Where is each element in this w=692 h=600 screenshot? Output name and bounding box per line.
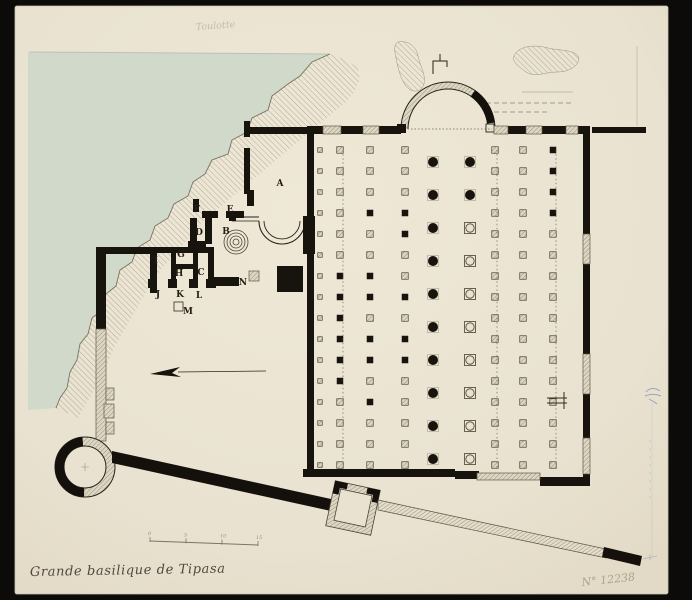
room-wall-black xyxy=(229,214,236,221)
pier-hatched xyxy=(520,357,527,364)
pier-solid xyxy=(337,336,344,343)
pier-hatched xyxy=(402,441,409,448)
pier-hatched xyxy=(402,273,409,280)
column-filled-circle xyxy=(465,157,475,167)
basilica-wall-black xyxy=(303,469,455,477)
column-filled-circle xyxy=(428,322,438,332)
pier-hatched xyxy=(520,420,527,427)
room-wall-black xyxy=(96,247,106,329)
basilica-wall-black xyxy=(583,264,590,354)
column-filled-circle xyxy=(428,388,438,398)
pier-solid xyxy=(337,315,344,322)
pier-solid xyxy=(402,336,409,343)
basilica-wall-hatched xyxy=(566,126,578,134)
room-label-H: H xyxy=(175,269,184,279)
column-open-circle xyxy=(466,422,474,430)
column-open-circle xyxy=(466,224,474,232)
column-filled-circle xyxy=(428,256,438,266)
room-label-K: K xyxy=(176,290,185,300)
pier-hatched xyxy=(520,294,527,301)
pier-hatched xyxy=(337,441,344,448)
column-open-circle xyxy=(466,323,474,331)
pier-hatched xyxy=(318,442,323,447)
pier-hatched xyxy=(402,399,409,406)
column-filled-circle xyxy=(428,190,438,200)
pier-hatched xyxy=(550,294,557,301)
room-wall-black xyxy=(277,266,303,292)
pier-hatched xyxy=(367,462,374,469)
pier-hatched xyxy=(367,315,374,322)
pier-hatched xyxy=(367,168,374,175)
pier-solid xyxy=(550,147,557,154)
basilica-wall-black xyxy=(307,134,314,470)
pier-solid xyxy=(550,168,557,175)
pier-hatched xyxy=(337,252,344,259)
apse-springer-square xyxy=(486,124,494,132)
room-wall-hatched xyxy=(249,271,259,281)
pier-hatched xyxy=(402,252,409,259)
basilica-wall-hatched xyxy=(583,234,590,264)
column-open-circle xyxy=(466,257,474,265)
room-label-D: D xyxy=(195,228,203,238)
basilica-wall-black xyxy=(397,124,406,133)
pier-hatched xyxy=(318,295,323,300)
basilica-wall-hatched xyxy=(583,438,590,474)
pier-hatched xyxy=(337,420,344,427)
room-label-C: C xyxy=(197,268,204,278)
basilica-wall-black xyxy=(341,126,363,134)
pier-hatched xyxy=(318,337,323,342)
basilica-wall-black xyxy=(583,134,590,234)
pier-hatched xyxy=(520,273,527,280)
pier-solid xyxy=(550,210,557,217)
room-label-E: E xyxy=(227,205,234,215)
room-wall-black xyxy=(205,218,212,244)
pier-hatched xyxy=(367,441,374,448)
pier-hatched xyxy=(402,189,409,196)
room-wall-hatched xyxy=(106,422,114,434)
pier-hatched xyxy=(550,462,557,469)
basilica-wall-hatched xyxy=(583,354,590,394)
pier-hatched xyxy=(550,336,557,343)
gate-structure xyxy=(326,481,381,536)
plan-drawing: ABCDEFGHIJKLMN051015 Grande basilique de… xyxy=(0,0,692,600)
pier-hatched xyxy=(550,441,557,448)
pier-solid xyxy=(367,210,374,217)
pier-hatched xyxy=(367,147,374,154)
column-filled-circle xyxy=(428,289,438,299)
pier-hatched xyxy=(402,378,409,385)
pier-hatched xyxy=(318,169,323,174)
pier-hatched xyxy=(550,357,557,364)
column-filled-circle xyxy=(428,454,438,464)
pier-hatched xyxy=(318,358,323,363)
pier-hatched xyxy=(318,400,323,405)
basilica-wall-hatched xyxy=(323,126,341,134)
pier-solid xyxy=(337,273,344,280)
basilica-wall-black xyxy=(583,394,590,438)
pier-solid xyxy=(367,273,374,280)
pier-hatched xyxy=(318,274,323,279)
pier-hatched xyxy=(318,190,323,195)
pier-hatched xyxy=(318,316,323,321)
column-filled-circle xyxy=(465,190,475,200)
pier-solid xyxy=(367,357,374,364)
room-wall-hatched xyxy=(96,329,106,441)
pier-hatched xyxy=(402,315,409,322)
column-open-circle xyxy=(466,356,474,364)
room-label-I: I xyxy=(154,256,158,266)
pier-hatched xyxy=(402,147,409,154)
pier-solid xyxy=(367,399,374,406)
pier-hatched xyxy=(550,273,557,280)
pier-hatched xyxy=(550,399,557,406)
room-wall-black xyxy=(168,279,177,288)
pier-solid xyxy=(550,189,557,196)
pier-hatched xyxy=(337,147,344,154)
room-wall-black xyxy=(303,216,315,254)
pier-solid xyxy=(337,294,344,301)
room-wall-black xyxy=(103,247,152,254)
pier-solid xyxy=(402,294,409,301)
pier-hatched xyxy=(520,252,527,259)
pier-hatched xyxy=(520,168,527,175)
pier-hatched xyxy=(318,232,323,237)
room-label-N: N xyxy=(239,278,247,288)
archival-photograph: ABCDEFGHIJKLMN051015 Grande basilique de… xyxy=(0,0,692,600)
column-open-circle xyxy=(466,455,474,463)
pier-hatched xyxy=(318,463,323,468)
pier-hatched xyxy=(318,379,323,384)
pier-hatched xyxy=(520,147,527,154)
room-wall-hatched xyxy=(106,388,114,400)
pier-hatched xyxy=(337,189,344,196)
column-filled-circle xyxy=(428,355,438,365)
pier-solid xyxy=(402,210,409,217)
pier-hatched xyxy=(318,421,323,426)
pier-hatched xyxy=(520,399,527,406)
basilica-wall-black xyxy=(455,471,479,479)
tower-ring xyxy=(55,437,115,497)
scale-label: 5 xyxy=(184,532,187,538)
column-filled-circle xyxy=(428,223,438,233)
room-wall-black xyxy=(189,279,198,288)
room-label-A: A xyxy=(276,179,285,189)
room-label-M: M xyxy=(183,307,193,317)
pier-hatched xyxy=(550,378,557,385)
pier-hatched xyxy=(367,420,374,427)
pier-hatched xyxy=(337,399,344,406)
basilica-wall-black xyxy=(592,127,646,133)
basilica-wall-black xyxy=(307,126,323,134)
pier-solid xyxy=(367,294,374,301)
pier-hatched xyxy=(520,231,527,238)
basilica-wall-black xyxy=(578,126,590,134)
pier-hatched xyxy=(520,315,527,322)
pier-hatched xyxy=(337,168,344,175)
pier-solid xyxy=(402,357,409,364)
pier-hatched xyxy=(550,420,557,427)
room-label-L: L xyxy=(196,291,203,301)
column-open-circle xyxy=(466,389,474,397)
room-label-F: F xyxy=(194,205,201,215)
column-filled-circle xyxy=(428,157,438,167)
pier-hatched xyxy=(520,210,527,217)
pier-hatched xyxy=(520,441,527,448)
pier-solid xyxy=(402,231,409,238)
room-wall-black xyxy=(247,190,254,206)
column-open-circle xyxy=(466,290,474,298)
pier-solid xyxy=(367,336,374,343)
basilica-wall-hatched xyxy=(363,126,379,134)
pier-hatched xyxy=(337,210,344,217)
pier-hatched xyxy=(337,462,344,469)
pier-solid xyxy=(337,357,344,364)
pier-hatched xyxy=(367,189,374,196)
pier-hatched xyxy=(550,315,557,322)
pier-hatched xyxy=(520,378,527,385)
pier-hatched xyxy=(367,231,374,238)
pier-hatched xyxy=(318,253,323,258)
room-wall-black xyxy=(244,121,250,137)
room-label-G: G xyxy=(177,250,185,260)
scale-label: 15 xyxy=(256,535,262,541)
room-wall-black xyxy=(244,148,250,194)
room-wall-black xyxy=(202,211,218,218)
basilica-wall-black xyxy=(540,477,590,486)
pier-hatched xyxy=(337,231,344,238)
basilica-wall-black xyxy=(508,126,526,134)
basilica-wall-black xyxy=(542,126,568,134)
pier-hatched xyxy=(520,462,527,469)
room-label-J: J xyxy=(155,290,160,300)
pier-hatched xyxy=(520,189,527,196)
pier-solid xyxy=(337,378,344,385)
room-wall-black xyxy=(148,279,156,288)
basilica-wall-hatched xyxy=(494,126,508,134)
basilica-wall-hatched xyxy=(477,473,540,480)
room-label-B: B xyxy=(222,227,230,237)
column-filled-circle xyxy=(428,421,438,431)
pier-hatched xyxy=(367,378,374,385)
room-wall-black xyxy=(213,277,239,286)
basilica-wall-hatched xyxy=(526,126,542,134)
pier-hatched xyxy=(367,252,374,259)
pier-hatched xyxy=(492,315,499,322)
scale-label: 10 xyxy=(220,534,227,540)
room-wall-black xyxy=(250,127,308,134)
room-wall-black xyxy=(188,241,206,247)
pier-hatched xyxy=(520,336,527,343)
pier-hatched xyxy=(402,168,409,175)
pier-hatched xyxy=(318,211,323,216)
room-wall-hatched xyxy=(104,404,114,418)
pier-hatched xyxy=(318,148,323,153)
pier-hatched xyxy=(402,420,409,427)
pier-hatched xyxy=(550,231,557,238)
pier-hatched xyxy=(550,252,557,259)
pier-hatched xyxy=(402,462,409,469)
